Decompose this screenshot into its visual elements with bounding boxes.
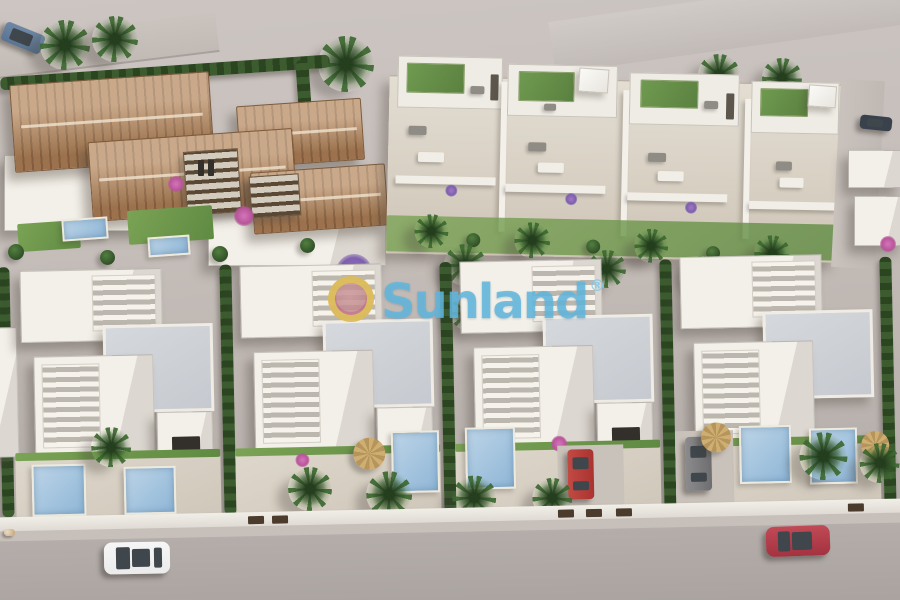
roof-terrace-louvers [261, 359, 321, 444]
rooftop-terrace [397, 55, 503, 109]
car-windshield [572, 457, 588, 469]
pool [31, 464, 86, 517]
watermark-brand-text: Sunland [381, 278, 587, 326]
bush [212, 246, 228, 262]
roof-lawn [406, 63, 465, 94]
sunland-logo-icon [328, 276, 374, 322]
car-white-road [104, 541, 171, 574]
terrace-furniture [648, 153, 666, 162]
window [198, 160, 204, 176]
terrace-furniture [528, 142, 546, 151]
roof-ridge [21, 112, 203, 128]
dog [4, 529, 15, 536]
dining-table [779, 177, 803, 188]
terrace-furniture [408, 126, 426, 135]
car-windshield [867, 118, 884, 128]
pool [124, 466, 177, 515]
gate [586, 509, 602, 517]
bush [300, 238, 315, 253]
roof-lawn [518, 71, 575, 102]
rooftop-terrace [507, 64, 618, 118]
dining-table [418, 152, 444, 163]
aerial-development-render: Sunland ® [0, 0, 900, 600]
pool [61, 216, 108, 241]
car-red-road [765, 525, 830, 557]
bush [100, 250, 115, 265]
roof-terrace-louvers [701, 350, 761, 435]
palm-tree [92, 16, 138, 62]
white-pergola [808, 84, 838, 108]
stairwell [490, 74, 499, 100]
roof-terrace-louvers [41, 363, 101, 448]
bougainvillea [234, 206, 254, 226]
car-windshield [778, 531, 791, 551]
gate [848, 503, 864, 511]
terrace-furniture [776, 161, 792, 170]
townhouse-row [386, 55, 842, 264]
dining-table [658, 171, 684, 182]
car-rear-window [573, 481, 589, 490]
car-cabin [792, 532, 813, 551]
window [208, 160, 214, 176]
rooftop-terrace [751, 81, 840, 135]
villa-lot [671, 251, 881, 507]
watermark: Sunland ® [328, 266, 605, 326]
roof-furniture [470, 86, 484, 94]
car-windshield [9, 28, 34, 47]
terracotta-villa-row [0, 60, 398, 265]
pool [739, 425, 792, 484]
rooftop-terrace [629, 72, 740, 126]
roof-terrace-louvers [92, 274, 157, 331]
right-building [848, 150, 900, 188]
roof-lawn [640, 80, 699, 109]
pool [147, 235, 190, 258]
roof-furniture [704, 101, 718, 109]
gate [616, 508, 632, 516]
bush [8, 244, 24, 260]
gate [558, 509, 574, 517]
roof-terrace-louvers [751, 260, 816, 317]
registered-trademark-symbol: ® [589, 276, 605, 295]
roof-furniture [544, 104, 556, 111]
gate [248, 516, 264, 524]
roof-lawn [760, 88, 809, 117]
bougainvillea [168, 176, 184, 192]
stairwell [726, 93, 735, 119]
white-pergola [578, 67, 610, 93]
car-rear-window [154, 548, 162, 568]
villa-lot [11, 265, 221, 521]
car-rear-window [691, 473, 707, 482]
car-windshield [116, 547, 130, 569]
gate [272, 515, 288, 523]
dining-table [538, 162, 564, 173]
slatted-pergola [249, 173, 302, 218]
car-sunroof [132, 549, 150, 567]
